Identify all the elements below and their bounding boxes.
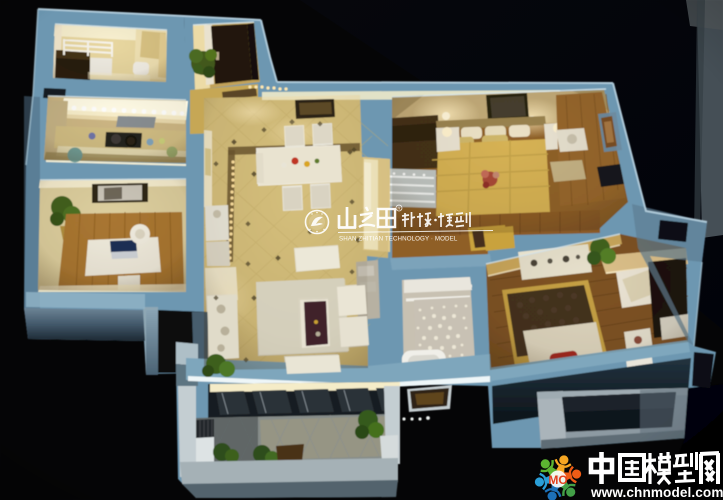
svg-text:www.chnmodel.com: www.chnmodel.com [590, 485, 723, 500]
svg-text:SHAN ZHITIAN TECHNOLOGY · MODE: SHAN ZHITIAN TECHNOLOGY · MODEL [339, 236, 458, 243]
svg-text:MO: MO [548, 473, 567, 487]
